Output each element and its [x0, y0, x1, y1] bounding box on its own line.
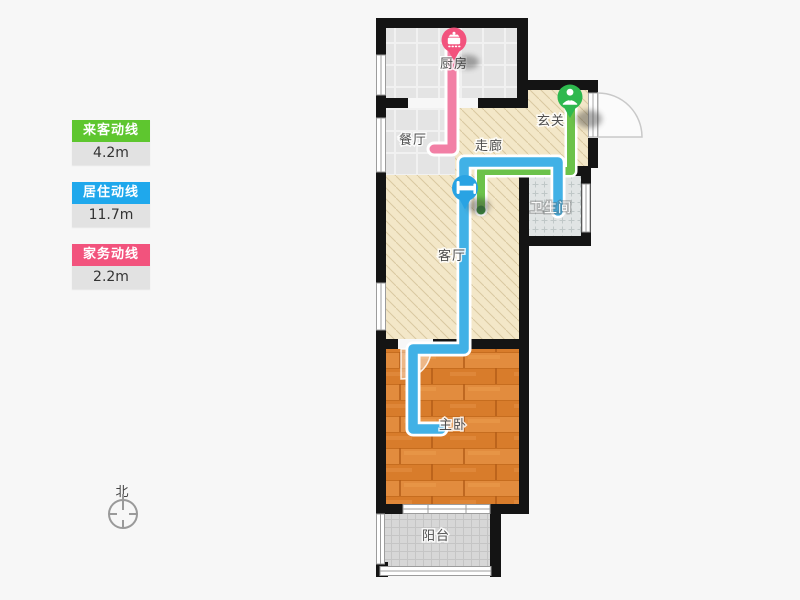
bedroom-label: 主卧	[439, 418, 467, 433]
wall	[376, 98, 408, 108]
wall	[519, 236, 591, 246]
dining-label: 餐厅	[399, 132, 427, 148]
wall	[519, 246, 529, 513]
wall	[376, 339, 398, 349]
legend-item-resident: 居住动线 11.7m	[72, 182, 150, 227]
wall	[519, 166, 529, 246]
room-floors	[385, 28, 588, 566]
entry-label: 玄关	[537, 114, 565, 129]
wall	[517, 18, 528, 108]
balcony-bottom-window	[380, 567, 491, 576]
wall	[490, 514, 501, 577]
wall	[376, 504, 403, 514]
legend-guest-value: 4.2m	[72, 142, 150, 165]
legend-resident-value: 11.7m	[72, 204, 150, 227]
wall	[376, 18, 528, 28]
balcony-left-window	[377, 514, 385, 564]
dining-window	[377, 118, 386, 172]
floorplan-page: 厨房 餐厅 走廊 玄关 卫生间 客厅 主卧 阳台	[0, 0, 800, 600]
bathroom-label: 卫生间	[530, 201, 572, 216]
balcony-slide-door	[403, 505, 490, 514]
kitchen-window	[377, 55, 386, 95]
wall	[517, 80, 598, 90]
legend-housework-value: 2.2m	[72, 266, 150, 289]
corridor-label: 走廊	[475, 138, 503, 154]
legend-guest-label: 来客动线	[72, 120, 150, 142]
route-legend: 来客动线 4.2m 居住动线 11.7m 家务动线 2.2m	[72, 120, 150, 306]
legend-item-housework: 家务动线 2.2m	[72, 244, 150, 289]
living-label: 客厅	[438, 248, 466, 264]
wall	[478, 98, 528, 108]
wall	[490, 504, 529, 514]
living-window	[377, 283, 386, 330]
legend-housework-label: 家务动线	[72, 244, 150, 266]
entry-door-arc	[598, 93, 642, 137]
legend-item-guest: 来客动线 4.2m	[72, 120, 150, 165]
compass: 北	[109, 485, 137, 528]
bathroom-window	[582, 184, 590, 232]
wall	[588, 80, 598, 93]
legend-resident-label: 居住动线	[72, 182, 150, 204]
balcony-label: 阳台	[422, 529, 450, 544]
wall	[588, 138, 598, 168]
